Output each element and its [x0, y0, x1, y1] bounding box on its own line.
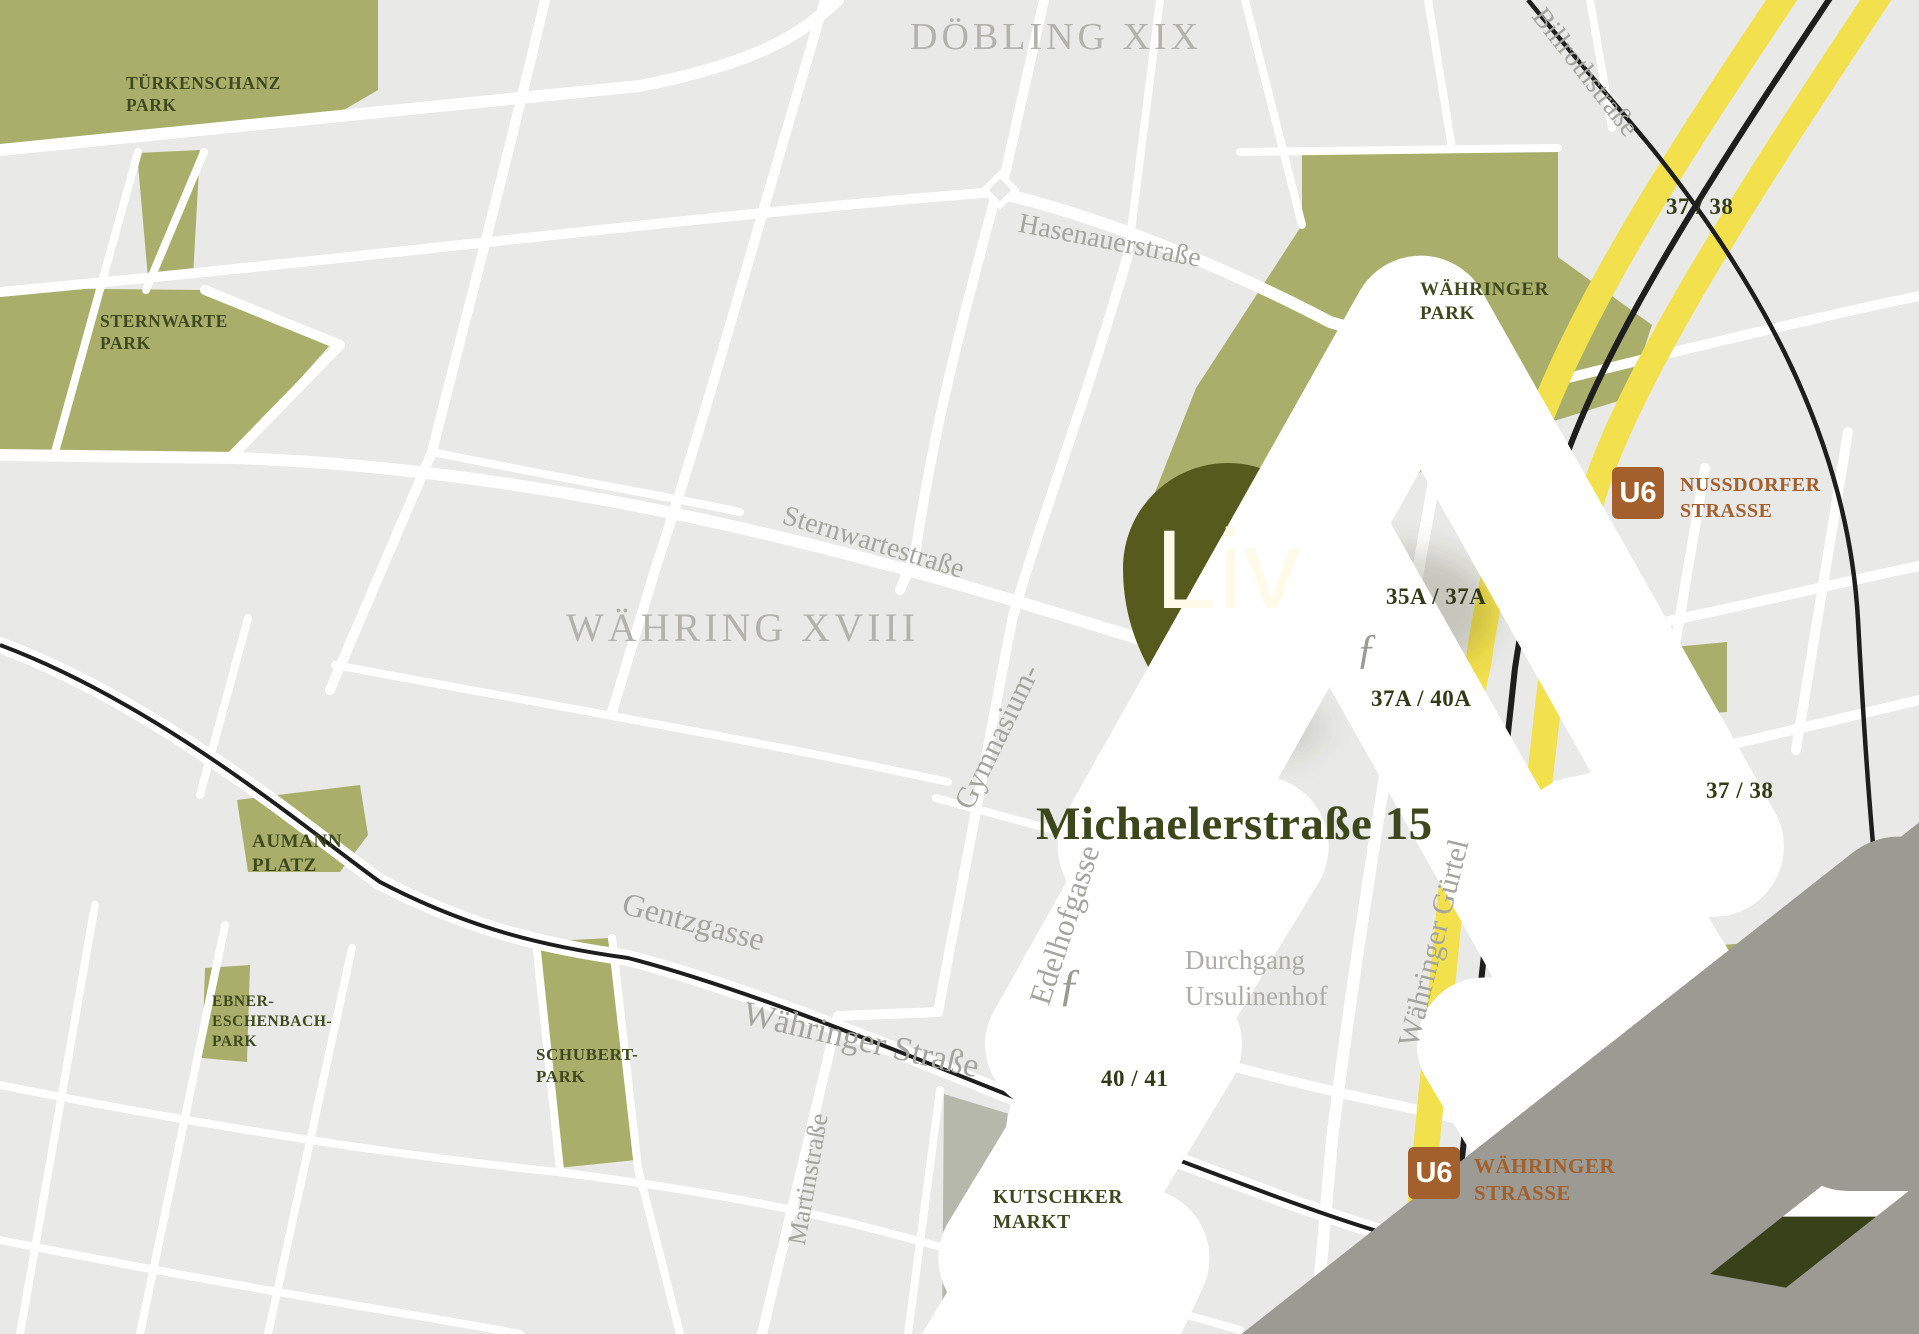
u6-station-line: STRASSE	[1474, 1180, 1615, 1207]
u6-station-line: NUSSDORFER	[1680, 472, 1821, 498]
passage-label: Durchgang Ursulinenhof	[1185, 942, 1327, 1015]
market-label-kutschker: KUTSCHKER MARKT	[993, 1186, 1123, 1236]
bus-lines-label: 37A / 40A	[1371, 686, 1471, 712]
park-label-line: PARK	[100, 332, 228, 354]
u6-station-line: STRASSE	[1680, 498, 1821, 524]
park-label-line: ESCHENBACH-	[212, 1012, 332, 1032]
u6-badge-waehringer: U6	[1408, 1147, 1460, 1199]
park-label-line: TÜRKENSCHANZ	[126, 72, 281, 94]
u6-badge-nussdorfer: U6	[1612, 467, 1664, 519]
u6-station-label-nussdorfer: NUSSDORFER STRASSE	[1680, 472, 1821, 524]
park-label-line: PLATZ	[252, 854, 342, 878]
u6-station-line: WÄHRINGER	[1474, 1153, 1615, 1180]
park-label-line: SCHUBERT-	[536, 1044, 638, 1066]
park-label-line: PARK	[212, 1032, 332, 1052]
bus-lines-label: 35A / 37A	[1386, 584, 1486, 610]
f-marker-icon: ƒ	[1356, 626, 1377, 674]
tram-lines-label: 37 / 38	[1666, 194, 1733, 220]
pin-label: Liv	[1128, 514, 1328, 626]
park-label-sternwarte: STERNWARTE PARK	[100, 310, 228, 355]
park-label-line: EBNER-	[212, 992, 332, 1012]
passage-label-line1: Durchgang	[1185, 942, 1327, 978]
address-label: Michaelerstraße 15	[1036, 797, 1433, 851]
park-label-aumann: AUMANN PLATZ	[252, 830, 342, 879]
park-label-tuerkenschanz: TÜRKENSCHANZ PARK	[126, 72, 281, 117]
park-label-line: PARK	[126, 94, 281, 116]
map-graphics	[0, 0, 1919, 1334]
district-label-waehring: WÄHRING XVIII	[566, 604, 919, 651]
park-label-line: WÄHRINGER	[1420, 278, 1549, 302]
park-label-line: AUMANN	[252, 830, 342, 854]
f-marker-icon: ƒ	[1058, 958, 1081, 1011]
park-label-line: KUTSCHKER	[993, 1186, 1123, 1211]
park-label-schubert: SCHUBERT- PARK	[536, 1044, 638, 1088]
park-label-ebner: EBNER- ESCHENBACH- PARK	[212, 992, 332, 1051]
district-label-doebling: DÖBLING XIX	[910, 15, 1202, 59]
u6-station-label-waehringer: WÄHRINGER STRASSE	[1474, 1153, 1615, 1208]
park-label-line: STERNWARTE	[100, 310, 228, 332]
tram-lines-label: 37 / 38	[1706, 778, 1773, 804]
passage-label-line2: Ursulinenhof	[1185, 978, 1327, 1014]
park-label-waehringer: WÄHRINGER PARK	[1420, 278, 1549, 327]
tram-lines-label: 40 / 41	[1101, 1066, 1168, 1092]
park-label-line: PARK	[1420, 302, 1549, 326]
park-area-strip	[137, 150, 200, 278]
park-label-line: PARK	[536, 1066, 638, 1088]
map-canvas: DÖBLING XIX WÄHRING XVIII Hasenauerstraß…	[0, 0, 1919, 1334]
park-label-line: MARKT	[993, 1211, 1123, 1236]
